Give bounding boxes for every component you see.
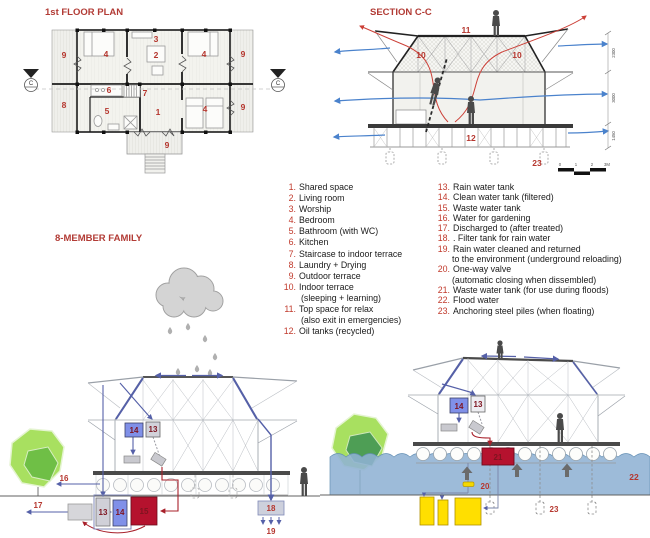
submerged-tank-1	[420, 497, 434, 525]
rain-cloud	[156, 268, 223, 317]
house-frame-flood	[408, 358, 625, 442]
wing-left	[88, 377, 143, 383]
label-attic-left: 10	[416, 50, 426, 60]
sink-fixture-flood	[441, 424, 457, 431]
section-drawing: SECTION C-C	[330, 0, 650, 180]
legend-item: 21.Waste water tank (for use during floo…	[430, 285, 648, 295]
legend-item: 12.Oil tanks (recycled)	[279, 326, 429, 337]
room-label-bathroom: 5	[105, 106, 110, 116]
room-label-bed-bottom-right: 4	[203, 104, 208, 114]
legend-item: 17.Discharged to (after treated)	[430, 223, 648, 233]
water-diagram-flood: 14 13 21 20 22 23	[320, 340, 650, 538]
living-seat	[152, 66, 163, 75]
terrace-right-area	[230, 30, 253, 132]
legend-item: 18.. Filter tank for rain water	[430, 233, 648, 243]
legend-item: 13.Rain water tank	[430, 182, 648, 192]
room-label-terrace-top-right: 9	[241, 49, 246, 59]
label-oil-tanks: 12	[466, 133, 476, 143]
scale-bar: 0 1 2 3M	[558, 162, 610, 175]
label-piles-23: 23	[550, 505, 559, 514]
section-marker-left-letter: C	[29, 81, 34, 87]
legend-item: 2.Living room	[279, 193, 429, 204]
room-label-shared: 1	[156, 107, 161, 117]
label-piles: 23	[532, 158, 542, 168]
legend-item: 20.One-way valve	[430, 264, 648, 274]
legend-item: 14.Clean water tank (filtered)	[430, 192, 648, 202]
room-label-kitchen: 6	[107, 85, 112, 95]
label-top-space: 11	[462, 25, 471, 35]
room-label-bed-top-right: 4	[202, 49, 207, 59]
wind-arrow-left-top	[335, 48, 390, 52]
rain-drops	[168, 323, 217, 376]
wing-right-flood	[573, 361, 620, 368]
deck-platform	[368, 124, 573, 128]
dimension-line: 2300 3000 1450	[605, 31, 616, 150]
floor-plan-title: 1st FLOOR PLAN	[45, 7, 123, 18]
drain-fixture-dry	[151, 452, 166, 466]
legend-item-cont: (also exit in emergencies)	[279, 315, 429, 326]
bed-bottom-right-2	[206, 98, 223, 128]
legend-text: Shared space	[299, 182, 353, 193]
wind-arrow-right-bottom	[568, 131, 608, 133]
wing-right	[233, 377, 297, 381]
label-gardening-16: 16	[60, 474, 69, 483]
legend-num: 1.	[279, 182, 296, 193]
submerged-tank-2	[438, 500, 448, 525]
label-tank14-upper: 14	[130, 426, 139, 435]
wc-fixture	[94, 116, 102, 127]
room-label-porch: 9	[165, 140, 170, 150]
plan-body: C C 9 4 3 2 4 9 8 6 7 1 5 4 9 9	[23, 29, 286, 174]
bed-top-left	[84, 32, 114, 56]
label-filter-18: 18	[267, 504, 276, 513]
room-label-worship: 3	[154, 34, 159, 44]
bed-bottom-right-1	[186, 98, 203, 128]
scale-3m: 3M	[604, 162, 610, 167]
legend-item: 15.Waste water tank	[430, 203, 648, 213]
room-label-terrace-bottom-right: 9	[241, 102, 246, 112]
dim-floor: 3000	[611, 93, 616, 103]
legend-item: 9.Outdoor terrace	[279, 271, 429, 282]
figures-flood	[497, 340, 565, 442]
room-label-laundry: 8	[62, 100, 67, 110]
deck-platform-flood	[413, 442, 620, 446]
label-attic-right: 10	[512, 50, 522, 60]
legend-item: 10.Indoor terrace	[279, 282, 429, 293]
label-underground-19: 19	[267, 527, 276, 536]
gutter-right	[233, 378, 257, 419]
one-way-valve	[463, 482, 474, 487]
architecture-sheet: { "floor_plan": { "title": "1st FLOOR PL…	[0, 0, 650, 538]
feed-tank13-flood	[442, 384, 475, 395]
wind-arrow-right-top	[558, 44, 607, 46]
legend-item: 6.Kitchen	[279, 237, 429, 248]
family-title: 8-MEMBER FAMILY	[55, 233, 143, 244]
label-tank13-upper: 13	[149, 425, 158, 434]
legend-water-system: 13.Rain water tank 14.Clean water tank (…	[430, 182, 648, 316]
legend-item: 23.Anchoring steel piles (when floating)	[430, 306, 648, 316]
house-frame-dry	[88, 377, 297, 471]
legend-item: 11.Top space for relax	[279, 304, 429, 315]
dim-base: 1450	[611, 131, 616, 141]
legend-item: 19.Rain water cleaned and returned	[430, 244, 648, 254]
label-flood-22: 22	[629, 472, 639, 482]
sink-fixture	[108, 124, 119, 130]
room-label-staircase: 7	[143, 88, 148, 98]
section-marker-right-letter: C	[276, 81, 281, 87]
legend-item-cont: to the environment (underground reloadin…	[430, 254, 648, 264]
gutter-left	[116, 378, 143, 419]
dim-attic: 2300	[611, 48, 616, 58]
staircase-hatch	[124, 85, 140, 97]
scale-2: 2	[591, 162, 594, 167]
anchor-piles	[386, 148, 548, 164]
tree	[10, 429, 64, 496]
pontoons-dry	[96, 475, 288, 495]
entry-stairs	[145, 154, 165, 173]
submerged-tank-3	[455, 498, 481, 525]
label-discharged-17: 17	[34, 501, 43, 510]
legend-item: 1.Shared space	[279, 182, 429, 193]
wind-arrow-left-bottom	[334, 135, 385, 137]
tank13-drain-dashed-flood	[478, 412, 482, 424]
gutter-right-flood	[573, 362, 597, 394]
room-label-living: 2	[154, 50, 159, 60]
section-marker-right: C	[270, 69, 286, 92]
deck-platform-dry	[93, 471, 290, 475]
bench	[396, 110, 426, 124]
label-tank21: 21	[494, 453, 503, 462]
scale-0: 0	[559, 162, 562, 167]
label-tank14-lower: 14	[116, 508, 125, 517]
sink-fixture-dry	[124, 456, 140, 463]
worship-altar	[132, 32, 152, 38]
filter-box	[68, 504, 92, 520]
legend-rooms: 1.Shared space 2.Living room 3.Worship 4…	[279, 182, 429, 337]
legend-item: 4.Bedroom	[279, 215, 429, 226]
legend-item: 3.Worship	[279, 204, 429, 215]
legend-item: 5.Bathroom (with WC)	[279, 226, 429, 237]
figure-on-roof	[492, 10, 500, 36]
label-valve-20: 20	[481, 482, 490, 491]
scale-1: 1	[575, 162, 578, 167]
legend-item: 8.Laundry + Drying	[279, 260, 429, 271]
legend-item: 7.Staircase to indoor terrace	[279, 249, 429, 260]
label-tank13-flood: 13	[474, 400, 483, 409]
label-tank15: 15	[140, 507, 149, 516]
room-label-terrace-left: 9	[62, 50, 67, 60]
legend-item: 16.Water for gardening	[430, 213, 648, 223]
figure-by-house	[300, 467, 308, 496]
floor-plan-drawing: 1st FLOOR PLAN	[0, 0, 300, 180]
section-marker-left: C	[23, 69, 39, 92]
figure-on-deck	[556, 413, 564, 442]
terrace-left-area	[52, 30, 77, 132]
roof-flow-right-flood	[524, 357, 558, 359]
legend-item-cont: (automatic closing when dissembled)	[430, 275, 648, 285]
room-label-bed-top-left: 4	[104, 49, 109, 59]
section-title: SECTION C-C	[370, 7, 432, 18]
legend-item-cont: (sleeping + learning)	[279, 293, 429, 304]
label-tank13-lower: 13	[99, 508, 108, 517]
label-tank14-flood: 14	[455, 402, 464, 411]
legend-item: 22.Flood water	[430, 295, 648, 305]
